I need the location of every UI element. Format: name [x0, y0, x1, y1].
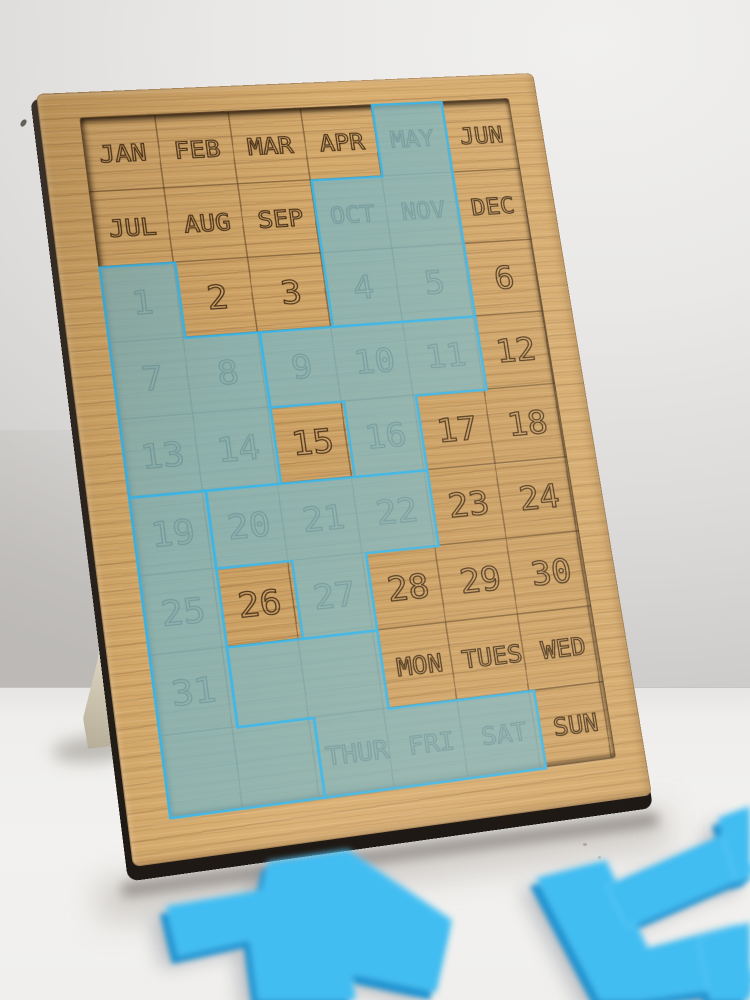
- piece-covering-20-21-22-27: [206, 470, 450, 647]
- photo-scene: JANFEBMARAPRMAYJUNJULAUGSEPOCTNOVDEC1234…: [0, 0, 750, 1000]
- table-speck: [598, 856, 601, 859]
- pieces-on-board-svg: [80, 99, 617, 819]
- piece-covering-9-10-11-16: [260, 317, 499, 484]
- piece-covering-1-7-8-13-14: [100, 258, 281, 498]
- piece-covering-may-oct-nov-4-5: [301, 102, 475, 327]
- board-recess: JANFEBMARAPRMAYJUNJULAUGSEPOCTNOVDEC1234…: [79, 98, 616, 817]
